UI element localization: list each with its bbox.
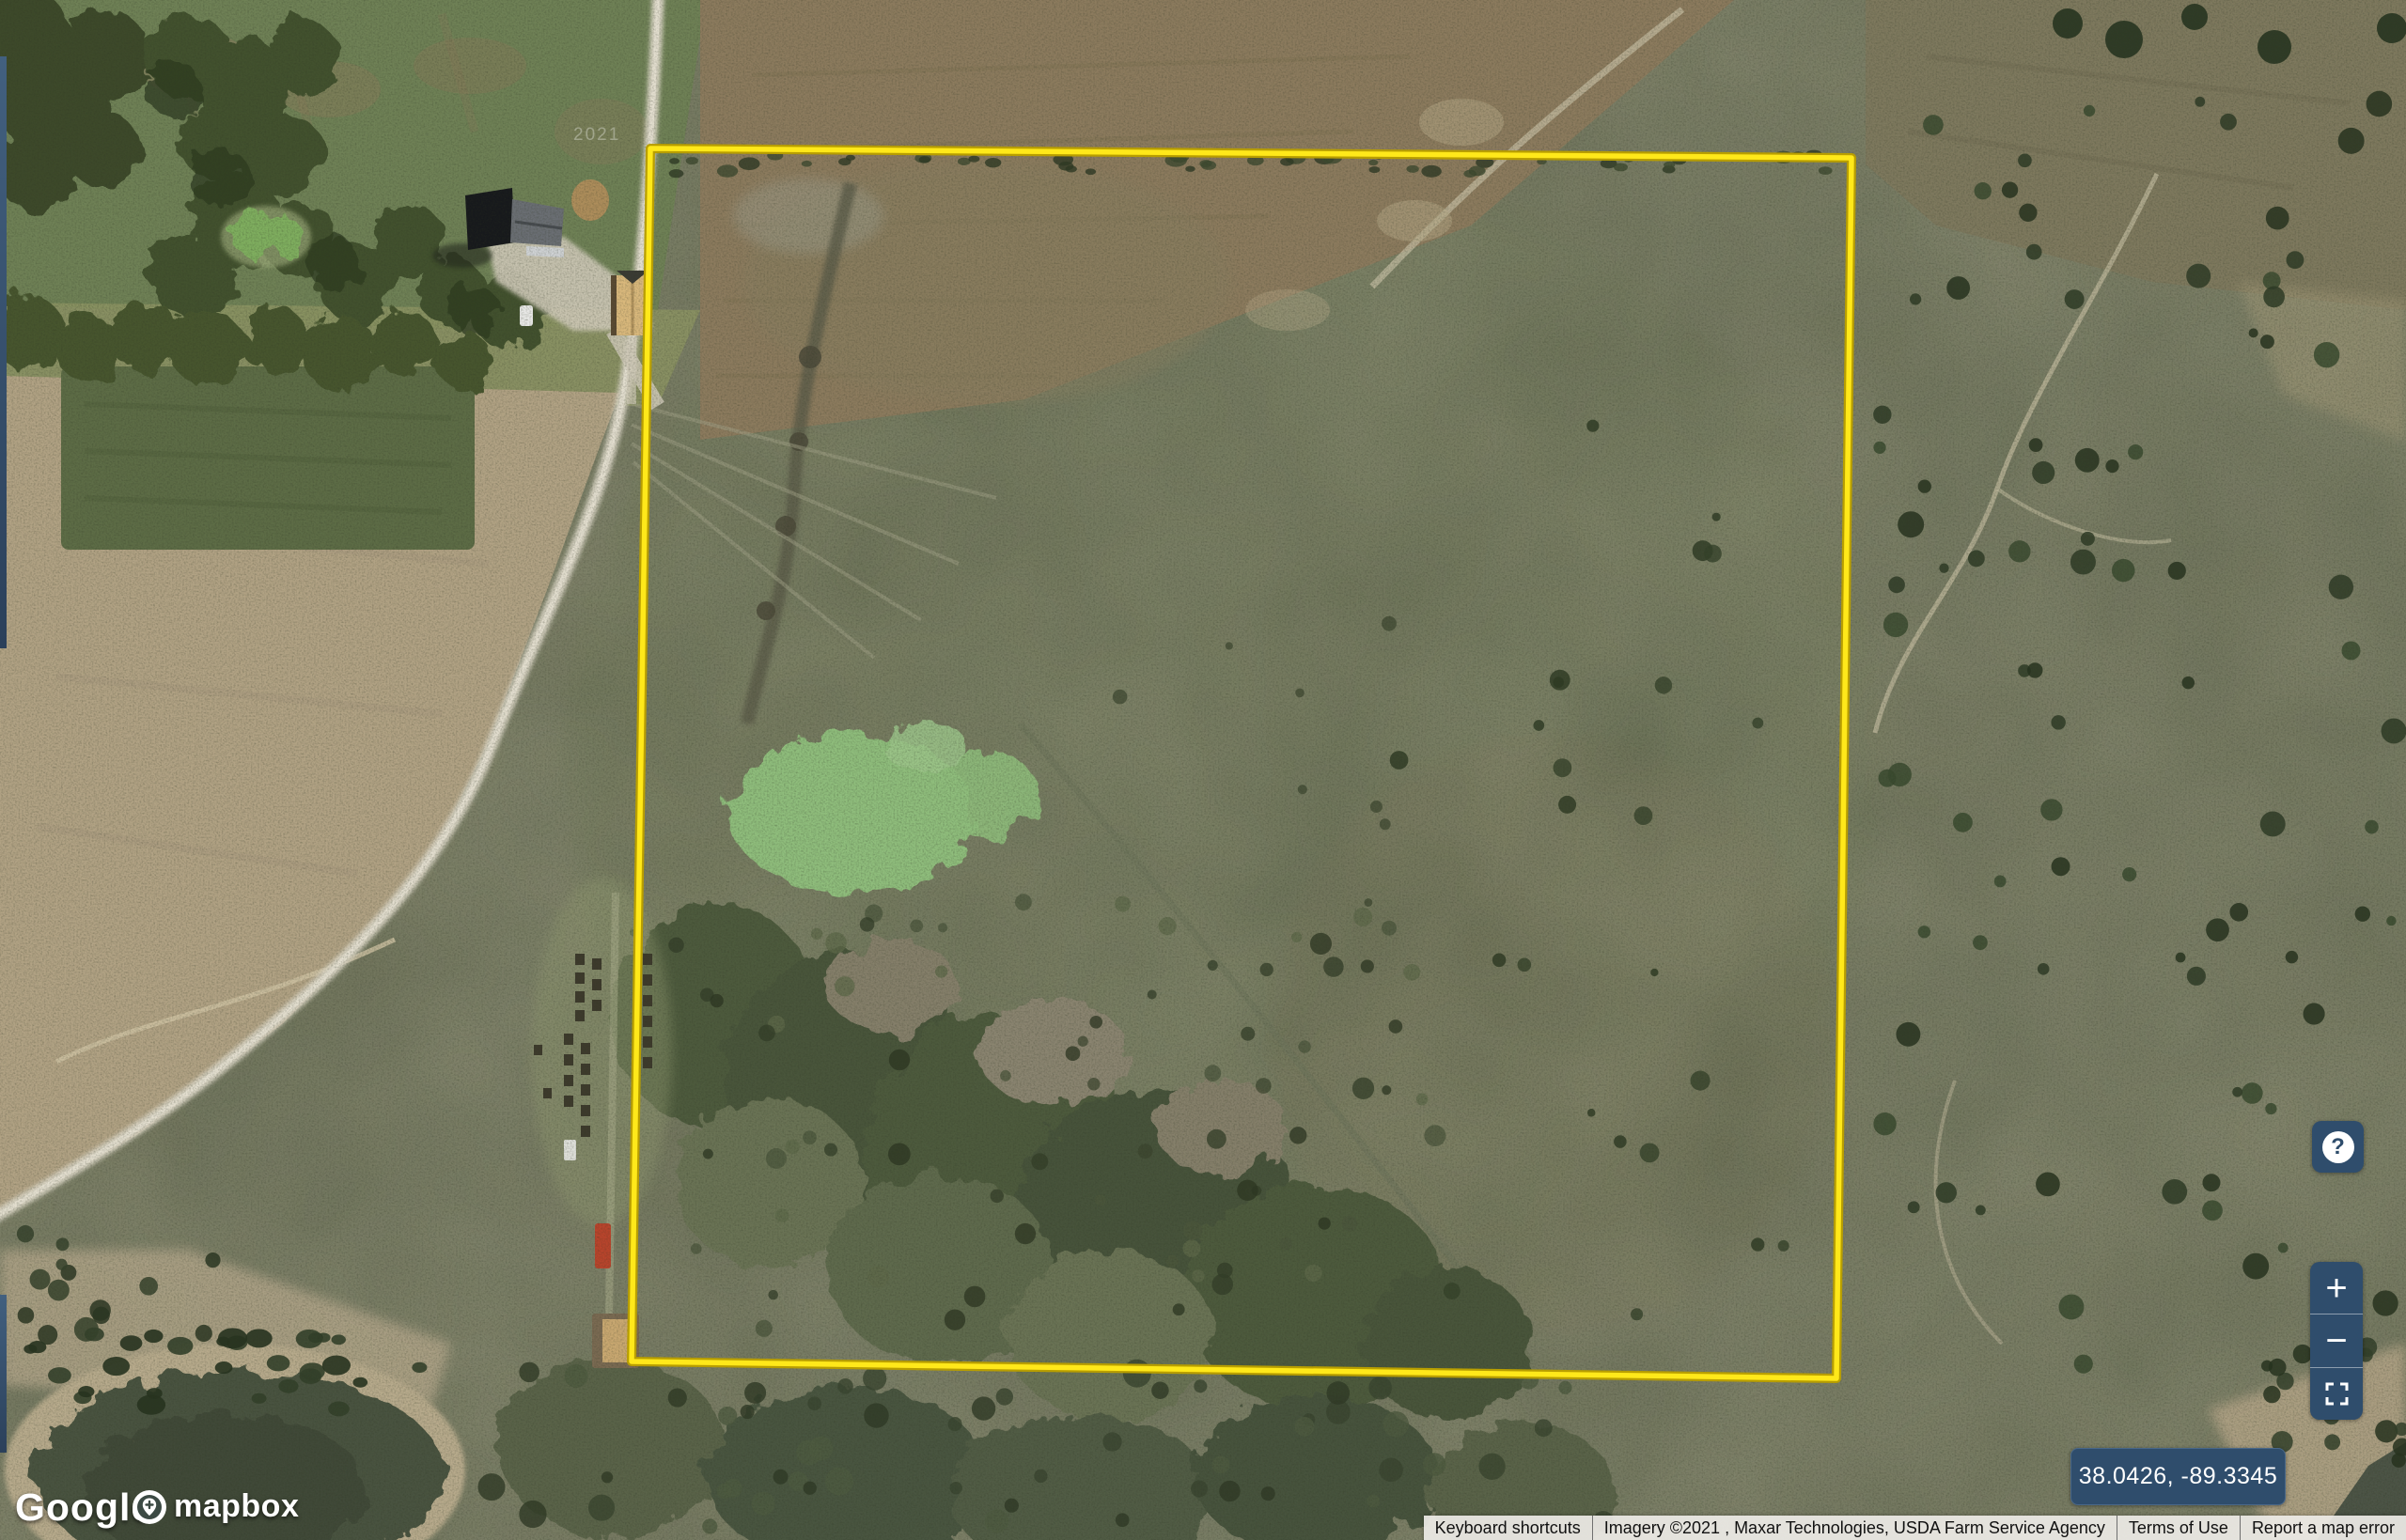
report-map-error-link[interactable]: Report a map error	[2240, 1516, 2406, 1540]
imagery-grain	[0, 0, 2406, 1540]
coordinates-badge: 38.0426, -89.3345	[2070, 1448, 2286, 1505]
imagery-attribution-text: Imagery ©2021 , Maxar Technologies, USDA…	[1592, 1516, 2117, 1540]
left-panel-edge-bottom	[0, 1295, 7, 1453]
left-panel-edge-top	[0, 56, 7, 648]
satellite-imagery[interactable]	[0, 0, 2406, 1540]
terms-of-use-link[interactable]: Terms of Use	[2117, 1516, 2240, 1540]
mapbox-logo-text: mapbox	[174, 1488, 299, 1525]
imagery-year-watermark: 2021	[573, 125, 620, 146]
zoom-out-button[interactable]: −	[2310, 1314, 2363, 1366]
help-button[interactable]: ?	[2312, 1121, 2364, 1173]
zoom-control: + −	[2310, 1262, 2363, 1420]
question-mark-icon: ?	[2322, 1131, 2354, 1163]
keyboard-shortcuts-button[interactable]: Keyboard shortcuts	[1424, 1516, 1592, 1540]
zoom-in-button[interactable]: +	[2310, 1262, 2363, 1314]
fullscreen-icon	[2324, 1381, 2350, 1407]
attribution-bar: Keyboard shortcuts Imagery ©2021 , Maxar…	[1424, 1516, 2406, 1540]
map-viewport[interactable]: 2021 Google mapbox Keyboard shortcuts Im…	[0, 0, 2406, 1540]
mapbox-pin-icon	[132, 1489, 167, 1525]
mapbox-logo[interactable]: mapbox	[132, 1488, 299, 1525]
fullscreen-button[interactable]	[2310, 1367, 2363, 1420]
